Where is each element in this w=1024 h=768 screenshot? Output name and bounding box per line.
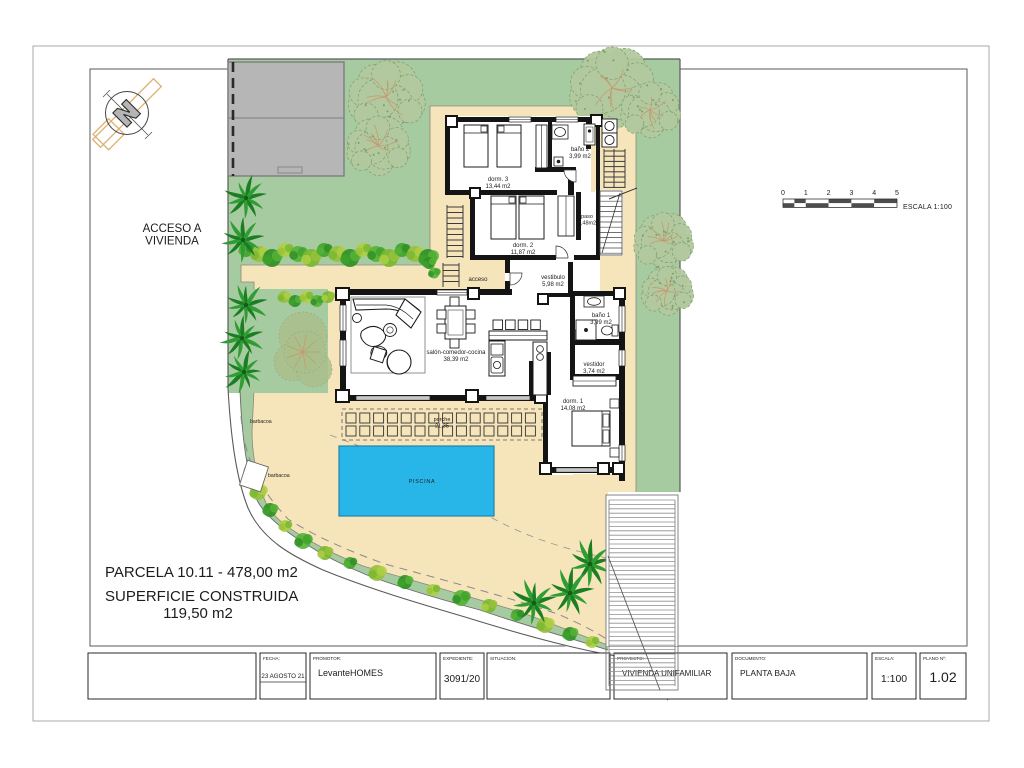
svg-text:LevanteHOMES: LevanteHOMES [318, 668, 383, 678]
svg-text:barbacoa: barbacoa [250, 419, 272, 425]
svg-text:ESCALA:: ESCALA: [875, 656, 894, 661]
svg-text:SUPERFICIE CONSTRUIDA: SUPERFICIE CONSTRUIDA [105, 588, 298, 605]
svg-text:5: 5 [895, 190, 899, 197]
svg-text:PISCINA: PISCINA [409, 479, 435, 485]
svg-text:3: 3 [849, 190, 853, 197]
svg-text:11,87 m2: 11,87 m2 [511, 250, 536, 256]
svg-text:dorm. 3: dorm. 3 [488, 177, 509, 183]
svg-text:salón-comedor-cocina: salón-comedor-cocina [426, 350, 486, 356]
svg-text:1:100: 1:100 [881, 673, 907, 685]
svg-text:vestidor: vestidor [583, 362, 604, 368]
svg-text:3091/20: 3091/20 [444, 674, 481, 685]
svg-text:ESCALA 1:100: ESCALA 1:100 [903, 204, 952, 211]
svg-text:barbacoa: barbacoa [268, 473, 290, 479]
svg-text:VIVIENDA UNIFAMILIAR: VIVIENDA UNIFAMILIAR [622, 669, 712, 678]
svg-text:3,99 m2: 3,99 m2 [569, 154, 591, 160]
svg-text:0: 0 [781, 190, 785, 197]
svg-text:SITUACION:: SITUACION: [490, 656, 516, 661]
svg-text:PARCELA 10.11 - 478,00 m2: PARCELA 10.11 - 478,00 m2 [105, 564, 298, 581]
svg-text:VIVIENDA: VIVIENDA [145, 236, 199, 248]
svg-text:EXPEDIENTE:: EXPEDIENTE: [443, 656, 473, 661]
svg-text:14,08 m2: 14,08 m2 [560, 406, 586, 412]
svg-text:baño 1: baño 1 [592, 313, 611, 319]
svg-text:21,35: 21,35 [435, 424, 449, 430]
svg-text:vestibulo: vestibulo [541, 275, 565, 281]
svg-text:dorm. 1: dorm. 1 [563, 399, 584, 405]
svg-text:38,39 m2: 38,39 m2 [443, 357, 469, 363]
svg-text:porche: porche [434, 417, 451, 423]
svg-text:4: 4 [872, 190, 876, 197]
svg-text:PROMOTOR:: PROMOTOR: [313, 656, 341, 661]
svg-text:23 AGOSTO 21: 23 AGOSTO 21 [261, 673, 305, 680]
svg-text:FECHA:: FECHA: [263, 656, 280, 661]
svg-text:DOCUMENTO:: DOCUMENTO: [735, 656, 766, 661]
svg-text:dorm. 2: dorm. 2 [513, 243, 534, 249]
svg-text:5,98 m2: 5,98 m2 [542, 282, 564, 288]
svg-text:paso: paso [581, 214, 593, 220]
svg-text:119,50 m2: 119,50 m2 [163, 605, 233, 622]
svg-text:baño 2: baño 2 [571, 147, 590, 153]
svg-text:1.02: 1.02 [929, 669, 956, 685]
svg-text:3,74 m2: 3,74 m2 [583, 369, 605, 375]
svg-text:3,99 m2: 3,99 m2 [590, 320, 612, 326]
svg-text:acceso: acceso [468, 277, 488, 283]
svg-text:ACCESO A: ACCESO A [143, 223, 202, 235]
svg-text:PLANO Nº:: PLANO Nº: [923, 656, 946, 661]
svg-text:3,48m2: 3,48m2 [578, 221, 596, 227]
svg-text:1: 1 [804, 190, 808, 197]
svg-text:2: 2 [827, 190, 831, 197]
svg-text:13,44 m2: 13,44 m2 [485, 184, 511, 190]
svg-text:PLANTA BAJA: PLANTA BAJA [740, 668, 796, 678]
